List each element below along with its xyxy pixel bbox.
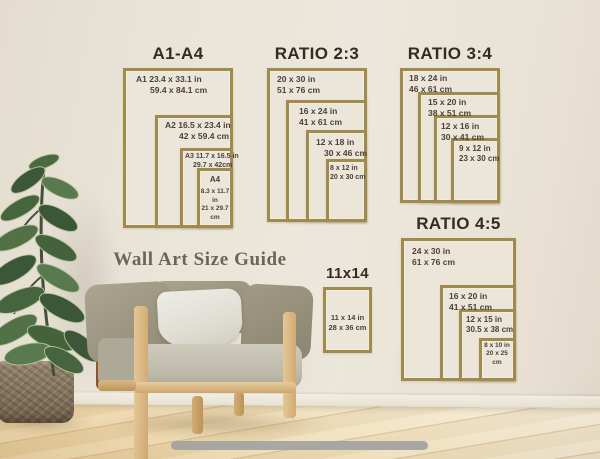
size-text-in: 8 x 10 in: [482, 342, 512, 350]
armchair: [82, 278, 318, 442]
size-text-cm: 20 x 25 cm: [482, 350, 512, 367]
size-text-cm: 30.5 x 38 cm: [466, 325, 513, 335]
size-text-cm: 42 x 59.4 cm: [179, 131, 231, 142]
size-text-in: 20 x 30 in: [277, 74, 320, 85]
size-text-in: 8.3 x 11.7 in: [199, 188, 231, 205]
size-text-cm: 30 x 46 cm: [324, 148, 367, 159]
wall-art-size-guide-scene: A1-A4 A1 23.4 x 33.1 in 59.4 x 84.1 cm A…: [0, 0, 600, 459]
size-text-cm: 21 x 29.7 cm: [199, 205, 231, 222]
chair-pillow-white: [157, 288, 244, 350]
size-text-in: 9 x 12 in: [459, 144, 499, 154]
frame-label-8x12: 8 x 12 in 20 x 30 cm: [330, 164, 365, 182]
frame-label-9x12: 9 x 12 in 23 x 30 cm: [459, 144, 499, 165]
size-text-in: A1 23.4 x 33.1 in: [136, 74, 207, 85]
section-title-a-series: A1-A4: [123, 45, 233, 62]
chair-leg-rear-right: [234, 392, 244, 416]
size-text-in: A3 11.7 x 16.5 in: [185, 152, 239, 161]
section-title-11x14: 11x14: [323, 266, 372, 281]
size-text-cm: 59.4 x 84.1 cm: [150, 85, 207, 96]
frame-heading: A4: [199, 175, 231, 185]
frame-label-a2: A2 16.5 x 23.4 in 42 x 59.4 cm: [165, 120, 231, 142]
size-text-in: 16 x 24 in: [299, 106, 342, 117]
frame-label-16x24: 16 x 24 in 41 x 61 cm: [299, 106, 342, 128]
size-text-in: A2 16.5 x 23.4 in: [165, 120, 231, 131]
frame-label-15x20: 15 x 20 in 38 x 51 cm: [428, 97, 471, 119]
frame-label-24x30: 24 x 30 in 61 x 76 cm: [412, 246, 455, 268]
size-text-in: 24 x 30 in: [412, 246, 455, 257]
chair-side-rail: [98, 380, 136, 391]
size-text-in: 12 x 15 in: [466, 315, 513, 325]
chair-front-rail: [134, 382, 296, 393]
size-text-in: 18 x 24 in: [409, 73, 452, 84]
frame-label-a3: A3 11.7 x 16.5 in 29.7 x 42cm: [185, 152, 239, 170]
size-text-cm: 46 x 61 cm: [409, 84, 452, 95]
frame-label-12x16: 12 x 16 in 30 x 41 cm: [441, 121, 484, 143]
chair-leg-front-right: [283, 312, 296, 418]
size-text-cm: 38 x 51 cm: [428, 108, 471, 119]
size-text-in: 15 x 20 in: [428, 97, 471, 108]
size-text-cm: 41 x 51 cm: [449, 302, 492, 313]
section-title-ratio-2-3: RATIO 2:3: [267, 45, 367, 62]
frame-label-12x15: 12 x 15 in 30.5 x 38 cm: [466, 315, 513, 336]
frame-label-a4: A4 8.3 x 11.7 in 21 x 29.7 cm: [199, 175, 231, 222]
size-text-cm: 41 x 61 cm: [299, 117, 342, 128]
size-text-in: 12 x 16 in: [441, 121, 484, 132]
chair-leg-rear-left: [192, 396, 203, 434]
size-text-cm: 28 x 36 cm: [325, 323, 370, 333]
frame-label-18x24: 18 x 24 in 46 x 61 cm: [409, 73, 452, 95]
size-text-in: 12 x 18 in: [316, 137, 367, 148]
size-text-in: 11 x 14 in: [325, 313, 370, 323]
section-title-ratio-3-4: RATIO 3:4: [400, 45, 500, 62]
guide-title: Wall Art Size Guide: [95, 249, 305, 271]
frame-label-8x10: 8 x 10 in 20 x 25 cm: [482, 342, 512, 367]
frame-label-11x14: 11 x 14 in 28 x 36 cm: [325, 313, 370, 333]
frame-label-12x18: 12 x 18 in 30 x 46 cm: [316, 137, 367, 159]
frame-label-16x20: 16 x 20 in 41 x 51 cm: [449, 291, 492, 313]
section-title-ratio-4-5: RATIO 4:5: [401, 215, 516, 232]
size-text-cm: 29.7 x 42cm: [193, 161, 239, 170]
size-text-cm: 61 x 76 cm: [412, 257, 455, 268]
bottom-bar: [171, 441, 428, 450]
frame-label-20x30: 20 x 30 in 51 x 76 cm: [277, 74, 320, 96]
size-text-cm: 51 x 76 cm: [277, 85, 320, 96]
size-text-cm: 23 x 30 cm: [459, 154, 499, 164]
size-text-cm: 30 x 41 cm: [441, 132, 484, 143]
size-text-in: 16 x 20 in: [449, 291, 492, 302]
size-text-in: 8 x 12 in: [330, 164, 365, 173]
frame-label-a1: A1 23.4 x 33.1 in 59.4 x 84.1 cm: [136, 74, 207, 96]
size-text-cm: 20 x 30 cm: [330, 173, 365, 182]
